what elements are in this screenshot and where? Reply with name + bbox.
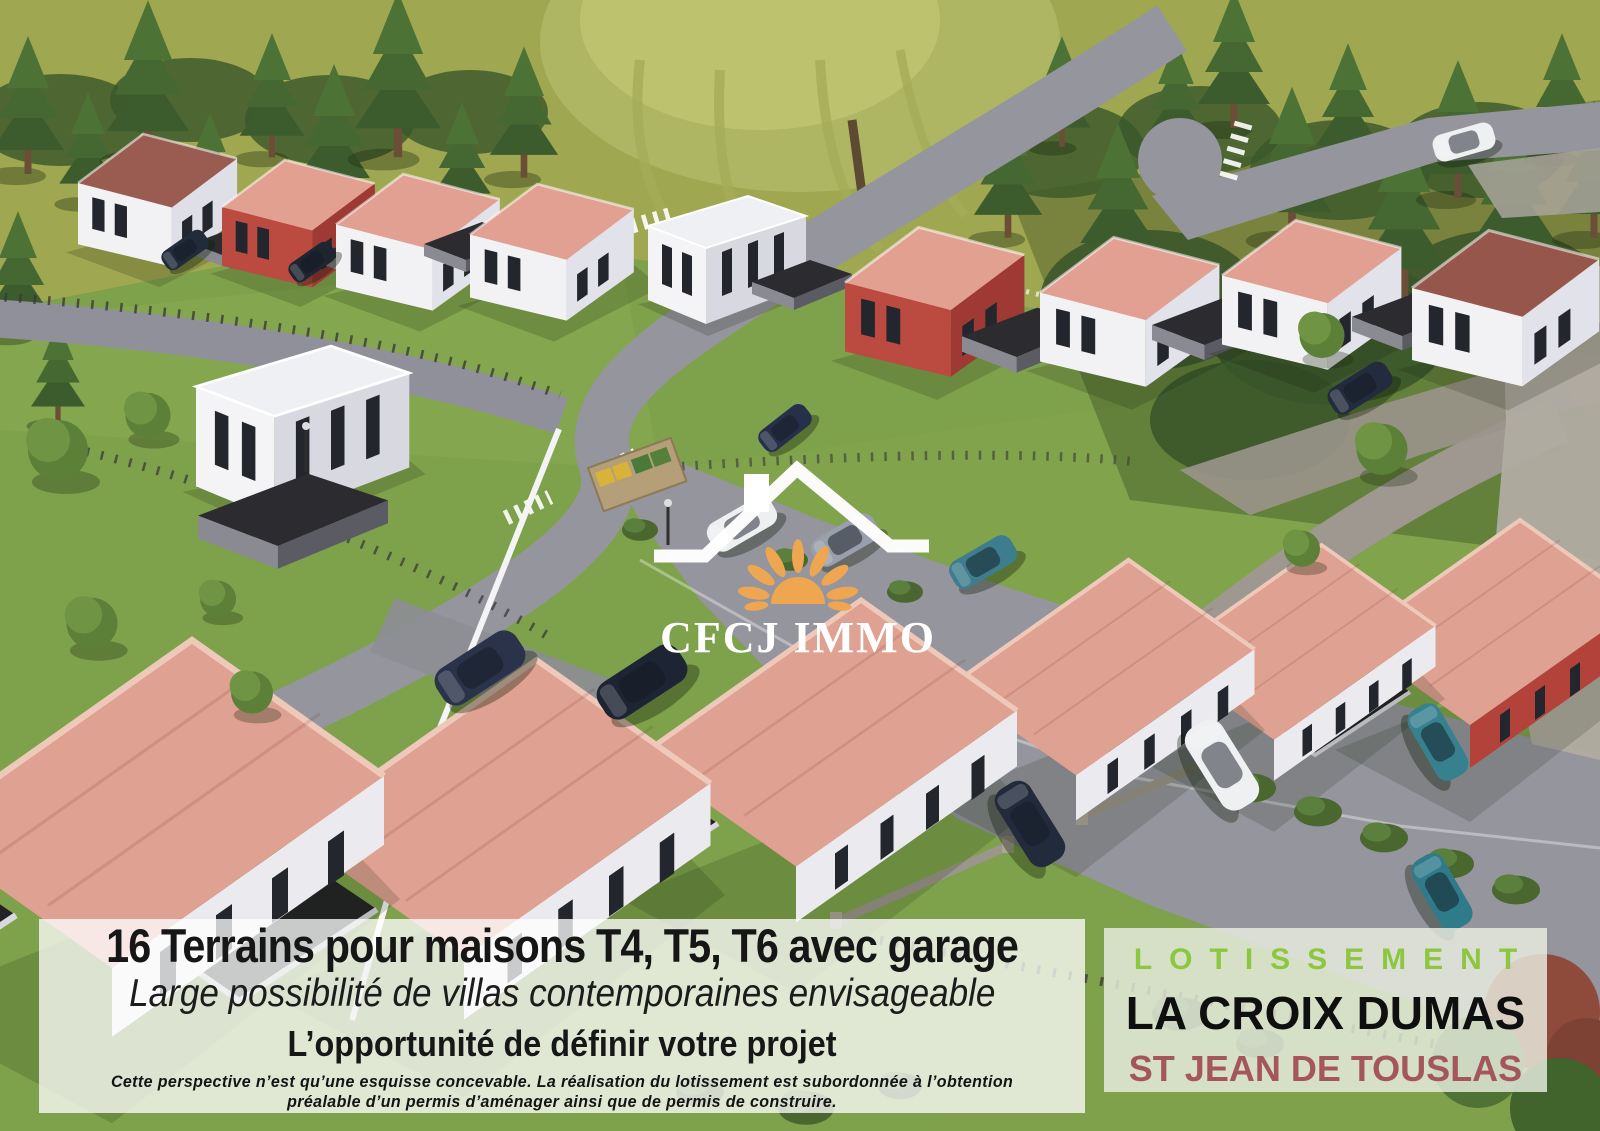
disclaimer: Cette perspective n’est qu’une esquisse …	[111, 1072, 1013, 1112]
brand-name: CFCJ IMMO	[660, 613, 936, 662]
project-name: LA CROIX DUMAS	[1126, 986, 1526, 1040]
disclaimer-line-1: Cette perspective n’est qu’une esquisse …	[111, 1072, 1013, 1092]
flyer-root: CFCJ IMMO 16 Terrains pour maisons T4, T…	[0, 0, 1600, 1131]
project-panel: LOTISSEMENT LA CROIX DUMAS ST JEAN DE TO…	[1104, 928, 1547, 1092]
subheadline: Large possibilité de villas contemporain…	[129, 973, 995, 1015]
project-location: ST JEAN DE TOUSLAS	[1129, 1048, 1522, 1090]
logo-chimney	[744, 474, 769, 512]
street-junction	[1138, 118, 1222, 202]
info-banner: 16 Terrains pour maisons T4, T5, T6 avec…	[39, 919, 1085, 1113]
headline: 16 Terrains pour maisons T4, T5, T6 avec…	[106, 920, 1018, 973]
project-label: LOTISSEMENT	[1117, 943, 1534, 977]
tagline: L’opportunité de définir votre projet	[287, 1023, 836, 1065]
disclaimer-line-2: préalable d’un permis d’aménager ainsi q…	[111, 1092, 1013, 1112]
